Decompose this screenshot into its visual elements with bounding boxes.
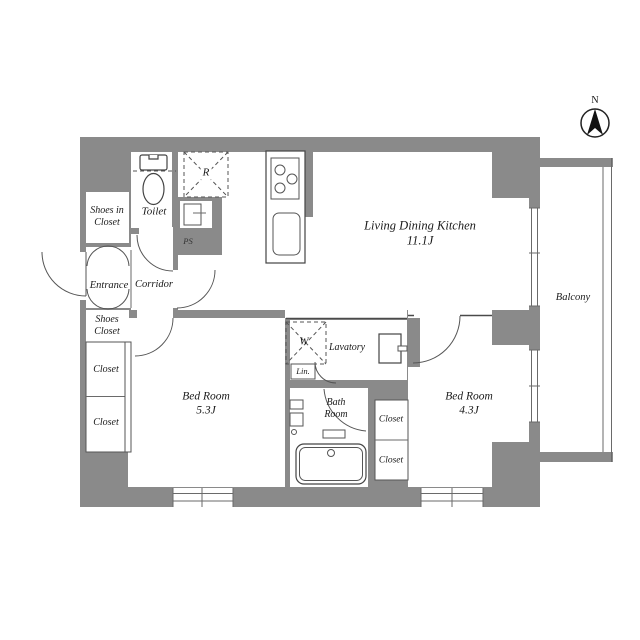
toilet-door-opening (139, 227, 173, 235)
label-north: N (591, 95, 598, 107)
label-closet-mid-bottom: Closet (379, 455, 403, 466)
kitchen-sink-icon (273, 213, 300, 255)
ldk-door-opening (172, 270, 179, 308)
label-toilet: Toilet (142, 206, 167, 219)
label-closet-mid-top: Closet (379, 414, 403, 425)
label-closet-left-bottom: Closet (93, 417, 119, 429)
room-entrance (86, 247, 131, 308)
label-refrigerator: R (201, 167, 212, 180)
bedroom2-south-window (421, 488, 483, 507)
label-linen: Lin. (296, 366, 309, 376)
label-pipe-space: PS (183, 236, 192, 246)
label-ldk: Living Dining Kitchen11.1J (364, 218, 476, 248)
bedroom1-door-opening (137, 310, 173, 318)
room-ldk-ext1 (285, 310, 407, 318)
label-washer: W (299, 336, 308, 349)
kitchen-counter (266, 151, 305, 263)
label-entrance: Entrance (90, 280, 129, 292)
north-compass-icon (581, 109, 609, 137)
bedroom1-south-window (173, 488, 233, 507)
room-balcony (540, 167, 612, 452)
lavatory-side-wall (407, 318, 420, 367)
balcony-top-wall (540, 158, 613, 167)
room-corridor (131, 234, 173, 310)
label-bathroom: BathRoom (324, 397, 347, 421)
label-closet-left-top: Closet (93, 364, 119, 376)
label-corridor: Corridor (135, 279, 173, 291)
label-balcony: Balcony (556, 292, 590, 304)
label-lavatory: Lavatory (329, 342, 365, 354)
label-shoes-closet: ShoesCloset (94, 314, 120, 338)
bath-step (323, 430, 345, 438)
bedroom2-balcony-window (529, 350, 540, 422)
floor-plan: Shoes inCloset Toilet R Living Dining Ki… (0, 0, 640, 640)
kitchen-stub-wall (305, 151, 313, 217)
label-shoes-in-closet: Shoes inCloset (90, 205, 124, 229)
label-bedroom-5-3: Bed Room5.3J (182, 390, 230, 417)
room-ldk (178, 152, 529, 310)
label-bedroom-4-3: Bed Room4.3J (445, 390, 493, 417)
closet-left-door-track (125, 342, 131, 452)
ldk-balcony-window (529, 208, 540, 306)
bathtub-icon (296, 444, 366, 484)
balcony-bottom-wall (540, 452, 613, 462)
stove-icon (271, 158, 299, 199)
